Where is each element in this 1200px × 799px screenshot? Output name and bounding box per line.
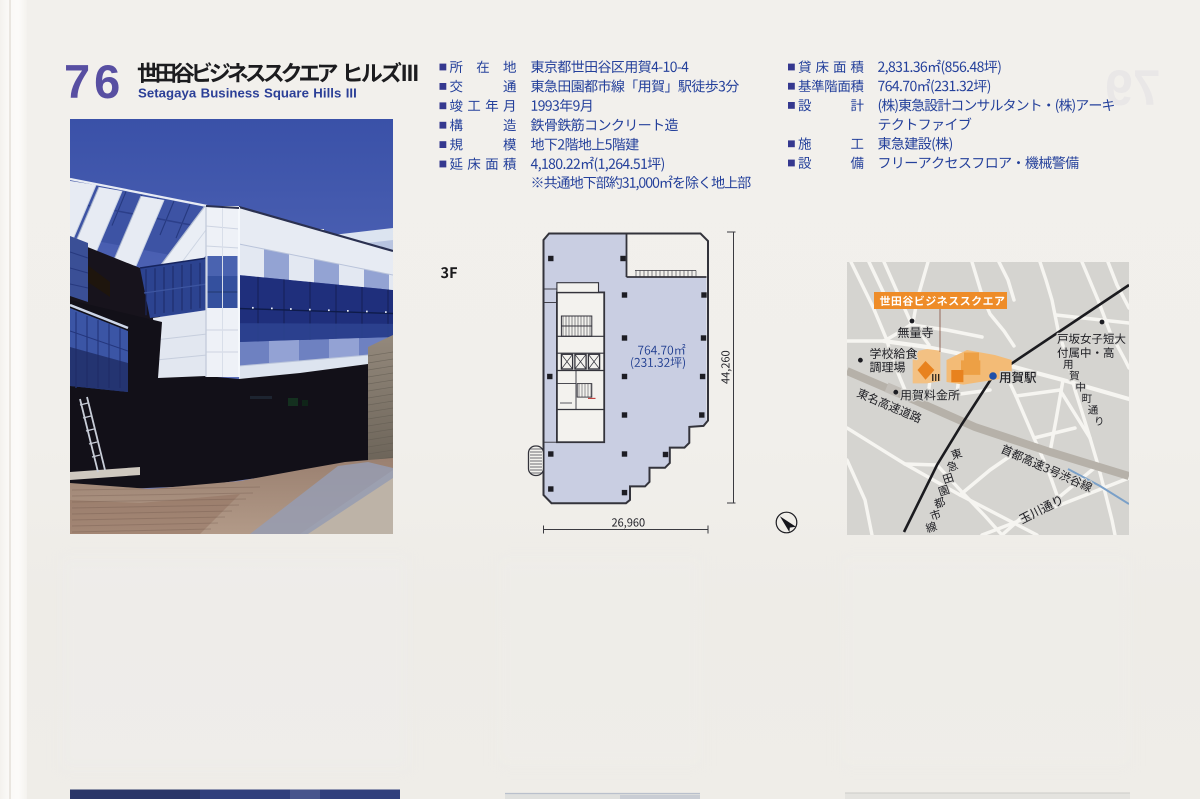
svg-text:76: 76 — [64, 55, 124, 108]
svg-text:79: 79 — [1105, 60, 1161, 116]
svg-text:Setagaya Business Square Hills: Setagaya Business Square Hills III — [138, 86, 357, 101]
